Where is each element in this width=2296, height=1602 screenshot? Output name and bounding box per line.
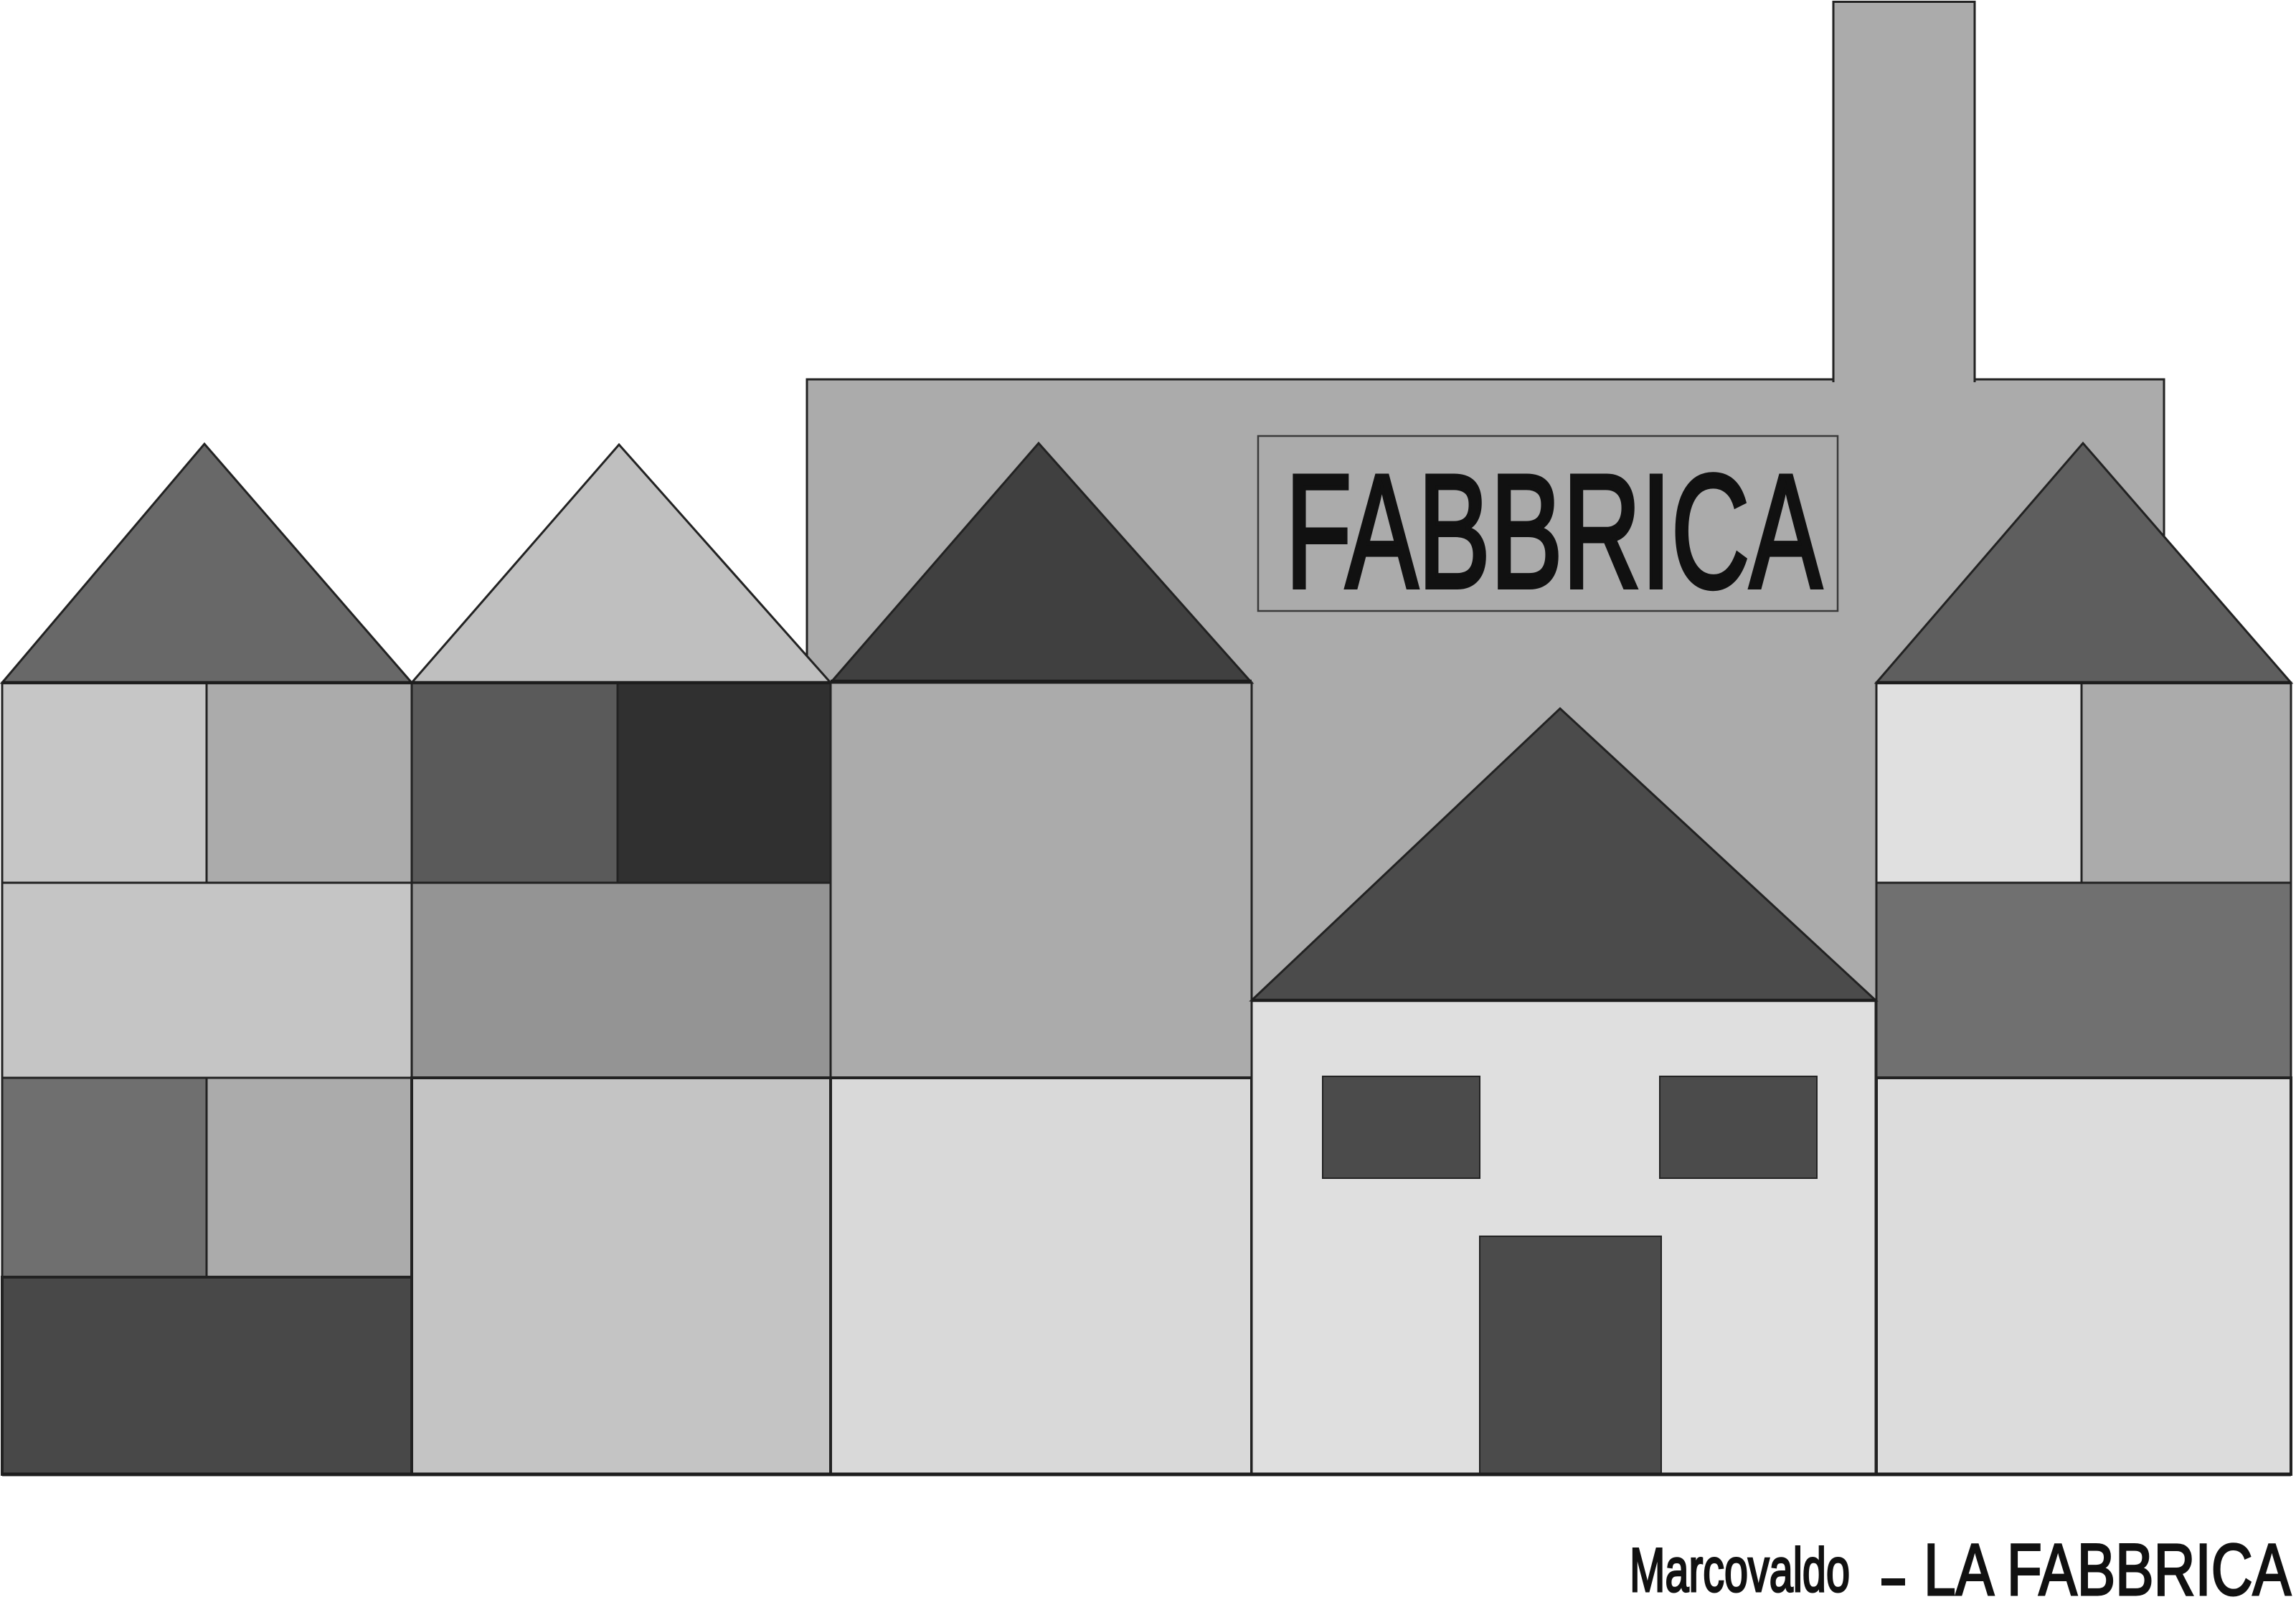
svg-text:FABBRICA: FABBRICA (1285, 440, 1822, 622)
svg-text:LA FABBRICA: LA FABBRICA (1924, 1529, 2291, 1602)
svg-text:Marcovaldo: Marcovaldo (1630, 1536, 1850, 1602)
